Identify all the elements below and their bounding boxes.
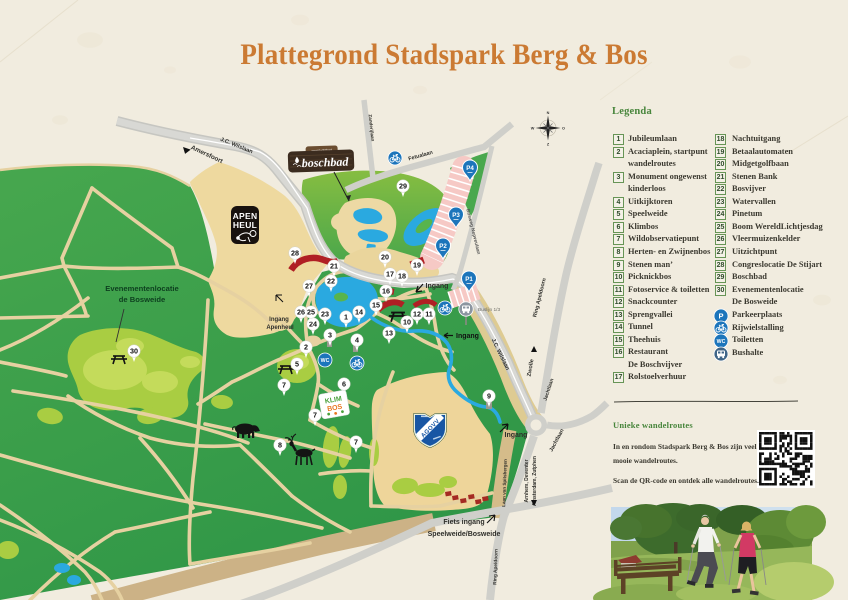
svg-text:5: 5 (295, 360, 299, 369)
svg-text:HEUL: HEUL (233, 220, 257, 230)
svg-text:19: 19 (413, 261, 421, 270)
svg-text:10: 10 (403, 318, 411, 327)
svg-text:14: 14 (355, 308, 363, 317)
svg-text:25: 25 (307, 308, 315, 317)
svg-text:9: 9 (487, 392, 491, 401)
svg-text:P1: P1 (465, 276, 473, 283)
svg-text:18: 18 (398, 272, 406, 281)
svg-text:Ingang: Ingang (505, 432, 528, 439)
svg-text:24: 24 (309, 320, 317, 329)
svg-text:P: P (718, 312, 723, 321)
svg-text:1: 1 (344, 313, 348, 322)
svg-text:Ingang: Ingang (456, 333, 479, 340)
svg-text:15: 15 (372, 301, 380, 310)
svg-text:26: 26 (297, 308, 305, 317)
svg-text:13: 13 (385, 329, 393, 338)
svg-text:30: 30 (130, 347, 138, 356)
svg-text:Amsterdam, Zutphen: Amsterdam, Zutphen (532, 456, 538, 506)
svg-text:28: 28 (291, 249, 299, 258)
svg-text:Arnhem, Deventer: Arnhem, Deventer (524, 459, 530, 502)
svg-text:boschbad: boschbad (302, 154, 350, 170)
svg-text:23: 23 (321, 310, 329, 319)
svg-text:Zwolle: Zwolle (527, 359, 536, 377)
svg-text:3: 3 (328, 331, 332, 340)
svg-text:Fiets ingang: Fiets ingang (443, 519, 484, 526)
svg-text:Ingang: Ingang (269, 317, 289, 323)
svg-text:7: 7 (282, 381, 286, 390)
svg-text:2: 2 (304, 343, 308, 352)
svg-text:N: N (547, 111, 550, 115)
svg-text:17: 17 (386, 270, 394, 279)
svg-text:Z: Z (547, 143, 550, 147)
svg-text:Evenementenlocatie: Evenementenlocatie (105, 284, 178, 293)
svg-text:W: W (531, 126, 535, 130)
svg-text:O: O (562, 126, 565, 130)
svg-text:P2: P2 (439, 243, 447, 250)
svg-text:WC: WC (717, 339, 726, 345)
svg-text:8: 8 (278, 441, 282, 450)
svg-text:11: 11 (425, 310, 433, 319)
svg-text:de Bosweide: de Bosweide (119, 295, 165, 304)
svg-text:Ring Apeldoorn: Ring Apeldoorn (532, 278, 548, 318)
svg-text:P3: P3 (452, 212, 460, 219)
svg-text:16: 16 (382, 287, 390, 296)
svg-text:7: 7 (313, 411, 317, 420)
svg-text:Apenheul: Apenheul (266, 325, 294, 331)
svg-text:29: 29 (399, 182, 407, 191)
svg-text:Buslijn 1/3: Buslijn 1/3 (478, 307, 500, 313)
svg-text:7: 7 (354, 438, 358, 447)
svg-text:Ring Apeldoorn: Ring Apeldoorn (492, 549, 499, 585)
svg-text:WC: WC (321, 358, 330, 364)
svg-text:20: 20 (381, 253, 389, 262)
svg-text:4: 4 (355, 336, 359, 345)
svg-text:6: 6 (342, 380, 346, 389)
svg-text:27: 27 (305, 282, 313, 291)
svg-text:21: 21 (330, 262, 338, 271)
svg-text:Speelweide/Bosweide: Speelweide/Bosweide (428, 531, 501, 538)
svg-text:12: 12 (413, 310, 421, 319)
svg-text:Ingang: Ingang (426, 283, 449, 290)
svg-text:Jachtlaan: Jachtlaan (549, 428, 566, 453)
svg-text:22: 22 (327, 277, 335, 286)
svg-text:P4: P4 (466, 165, 474, 172)
